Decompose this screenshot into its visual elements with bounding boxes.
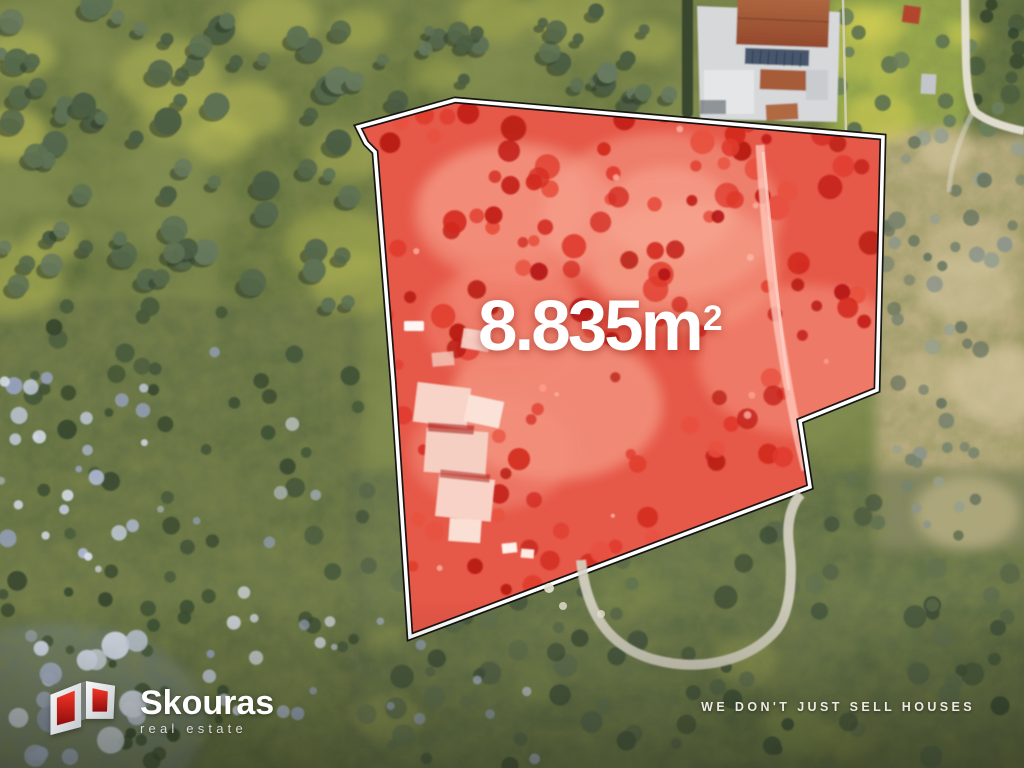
tagline: WE DON'T JUST SELL HOUSES: [701, 700, 975, 714]
gray-shed: [920, 74, 936, 95]
brand-name: Skouras: [140, 686, 274, 720]
red-roof-shed: [902, 5, 921, 24]
parcel-area-label: 8.835m2: [478, 291, 723, 362]
brand-logo: Skouras real estate: [44, 670, 274, 740]
brand-subtitle: real estate: [140, 721, 274, 736]
area-value: 8.835m: [478, 287, 701, 366]
area-superscript: 2: [703, 298, 723, 338]
aerial-photo: [0, 0, 1024, 768]
listing-image: 8.835m2 Skouras real estate WE DON'T JUS…: [0, 0, 1024, 768]
building-frames-icon: [44, 672, 128, 740]
